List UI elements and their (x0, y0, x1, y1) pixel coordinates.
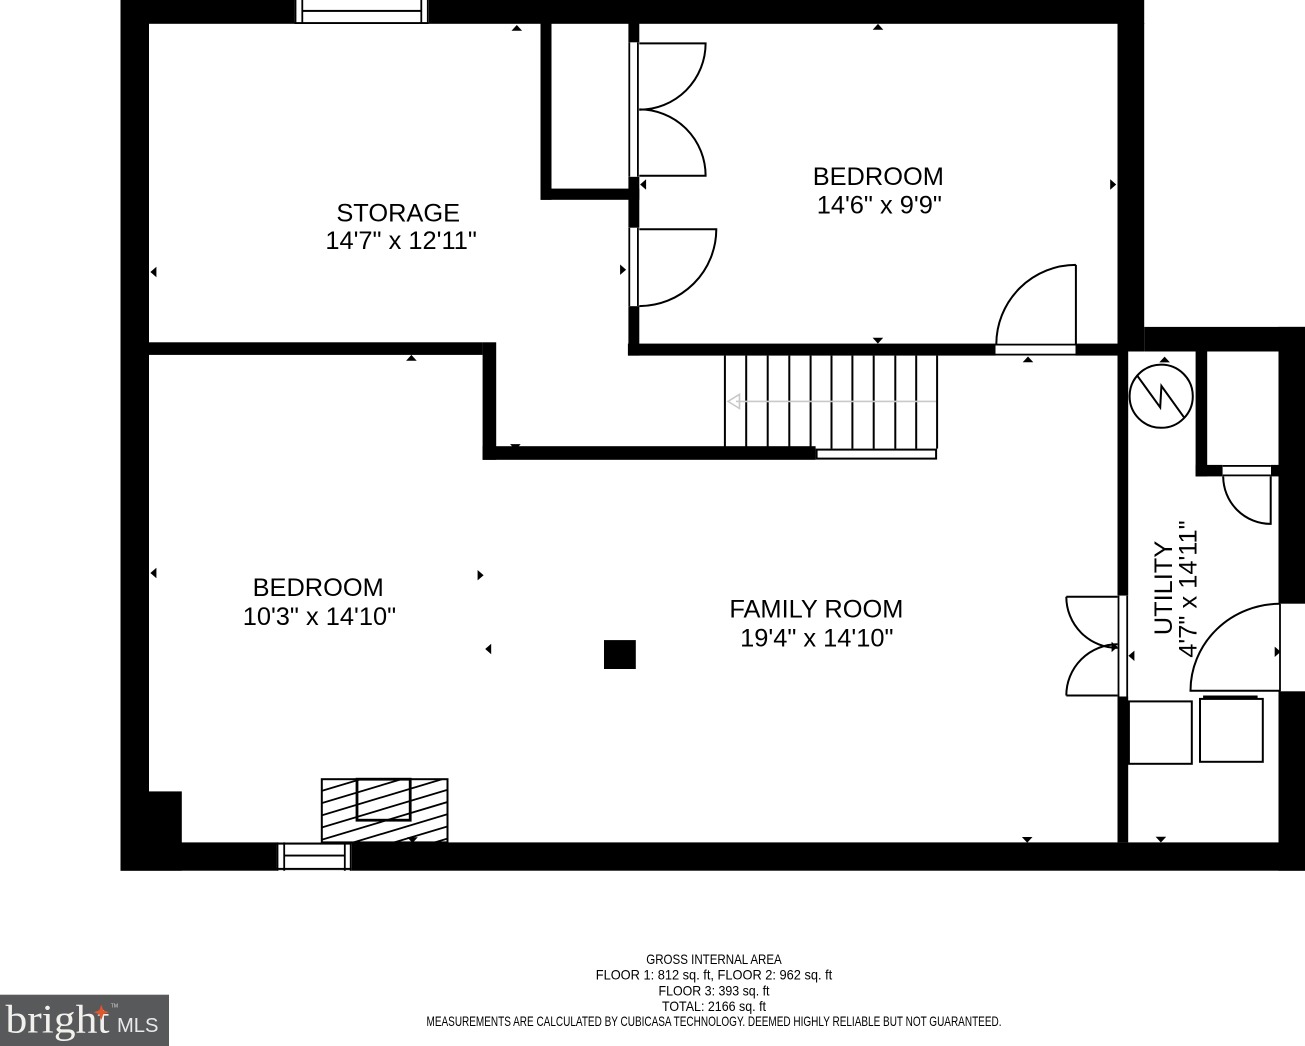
svg-text:BEDROOM: BEDROOM (813, 163, 944, 191)
svg-text:BEDROOM: BEDROOM (253, 574, 384, 602)
svg-text:14'7" x 12'11": 14'7" x 12'11" (325, 227, 477, 255)
svg-text:4'7" x 14'11": 4'7" x 14'11" (1174, 520, 1202, 657)
svg-text:14'6" x 9'9": 14'6" x 9'9" (817, 192, 942, 220)
svg-text:TM: TM (111, 1004, 118, 1010)
svg-text:FLOOR 1: 812 sq. ft, FLOOR 2:: FLOOR 1: 812 sq. ft, FLOOR 2: 962 sq. ft (596, 968, 833, 983)
svg-text:bright: bright (6, 997, 110, 1042)
svg-text:GROSS INTERNAL AREA: GROSS INTERNAL AREA (646, 952, 782, 967)
svg-text:FAMILY ROOM: FAMILY ROOM (729, 596, 903, 624)
svg-text:10'3" x 14'10": 10'3" x 14'10" (243, 603, 396, 631)
svg-text:19'4" x 14'10": 19'4" x 14'10" (740, 624, 893, 652)
svg-text:FLOOR 3: 393 sq. ft: FLOOR 3: 393 sq. ft (659, 984, 770, 999)
svg-text:MEASUREMENTS ARE CALCULATED BY: MEASUREMENTS ARE CALCULATED BY CUBICASA … (427, 1014, 1002, 1029)
svg-text:STORAGE: STORAGE (336, 199, 460, 227)
svg-text:TOTAL: 2166 sq. ft: TOTAL: 2166 sq. ft (662, 999, 766, 1014)
svg-text:MLS: MLS (117, 1014, 159, 1037)
